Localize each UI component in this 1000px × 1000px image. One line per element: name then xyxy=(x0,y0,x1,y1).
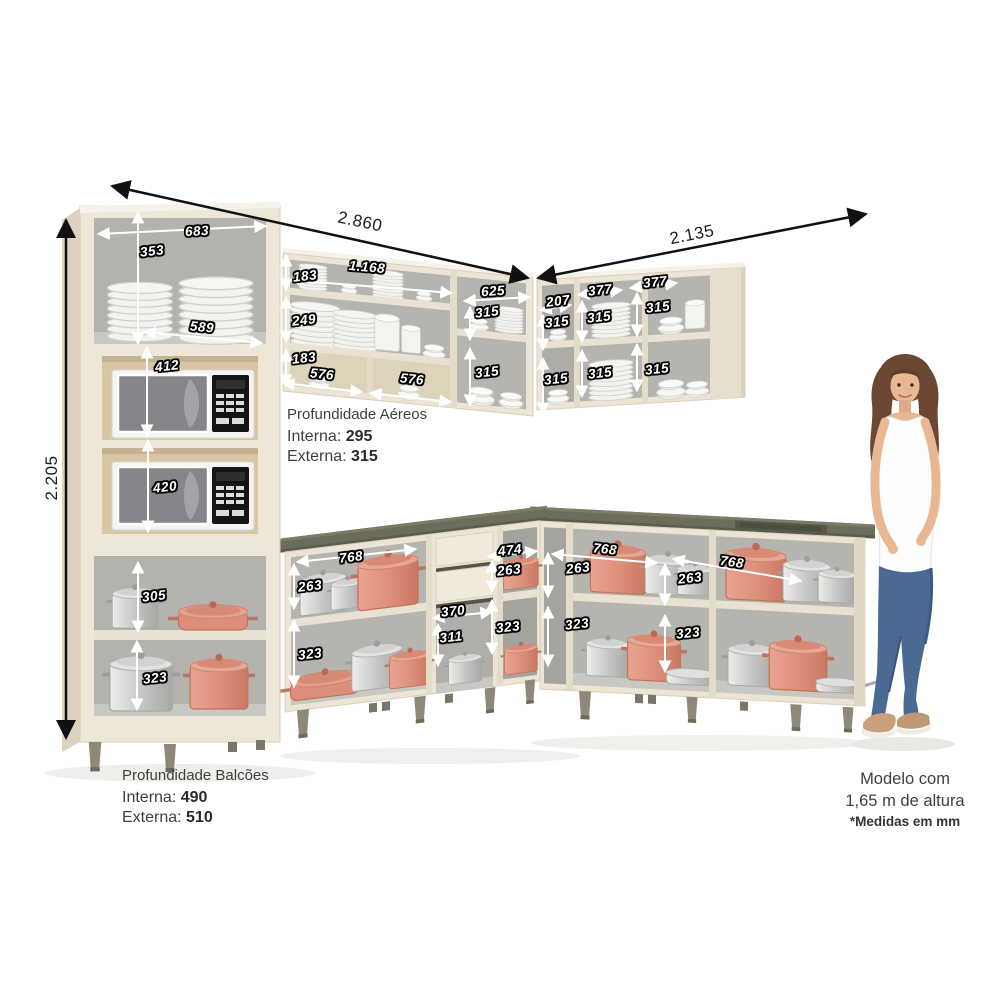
upper-right-cabinets xyxy=(537,262,745,410)
model-figure xyxy=(851,354,955,751)
model-note-line1: Modelo com xyxy=(820,768,990,790)
upper-depth-interna: Interna: 295 xyxy=(287,427,427,447)
dim-total-height: 2.205 xyxy=(42,455,62,500)
base-right-cabinets xyxy=(530,506,877,735)
drawer-front-bottom xyxy=(436,565,493,602)
base-depth-interna: Interna: 490 xyxy=(122,788,269,808)
base-depth-title: Profundidade Balcões xyxy=(122,766,269,786)
upper-depth-externa: Externa: 315 xyxy=(287,447,427,467)
upper-left-cabinets xyxy=(283,248,533,416)
base-left-cabinets xyxy=(279,506,547,741)
model-note-line2: 1,65 m de altura xyxy=(820,790,990,812)
upper-cabinets-depth-note: Profundidade Aéreos Interna: 295 Externa… xyxy=(287,405,427,467)
base-depth-externa: Externa: 510 xyxy=(122,808,269,828)
upper-depth-title: Profundidade Aéreos xyxy=(287,405,427,425)
kitchen-cabinet-dimension-diagram: 2.860 2.135 2.205 683 353 589 412 420 30… xyxy=(0,0,1000,1000)
units-note: *Medidas em mm xyxy=(820,812,990,832)
tall-cabinet xyxy=(62,202,280,772)
model-height-note: Modelo com 1,65 m de altura *Medidas em … xyxy=(820,768,990,832)
base-cabinets-depth-note: Profundidade Balcões Interna: 490 Extern… xyxy=(122,766,269,828)
scene-illustration xyxy=(0,0,1000,1000)
